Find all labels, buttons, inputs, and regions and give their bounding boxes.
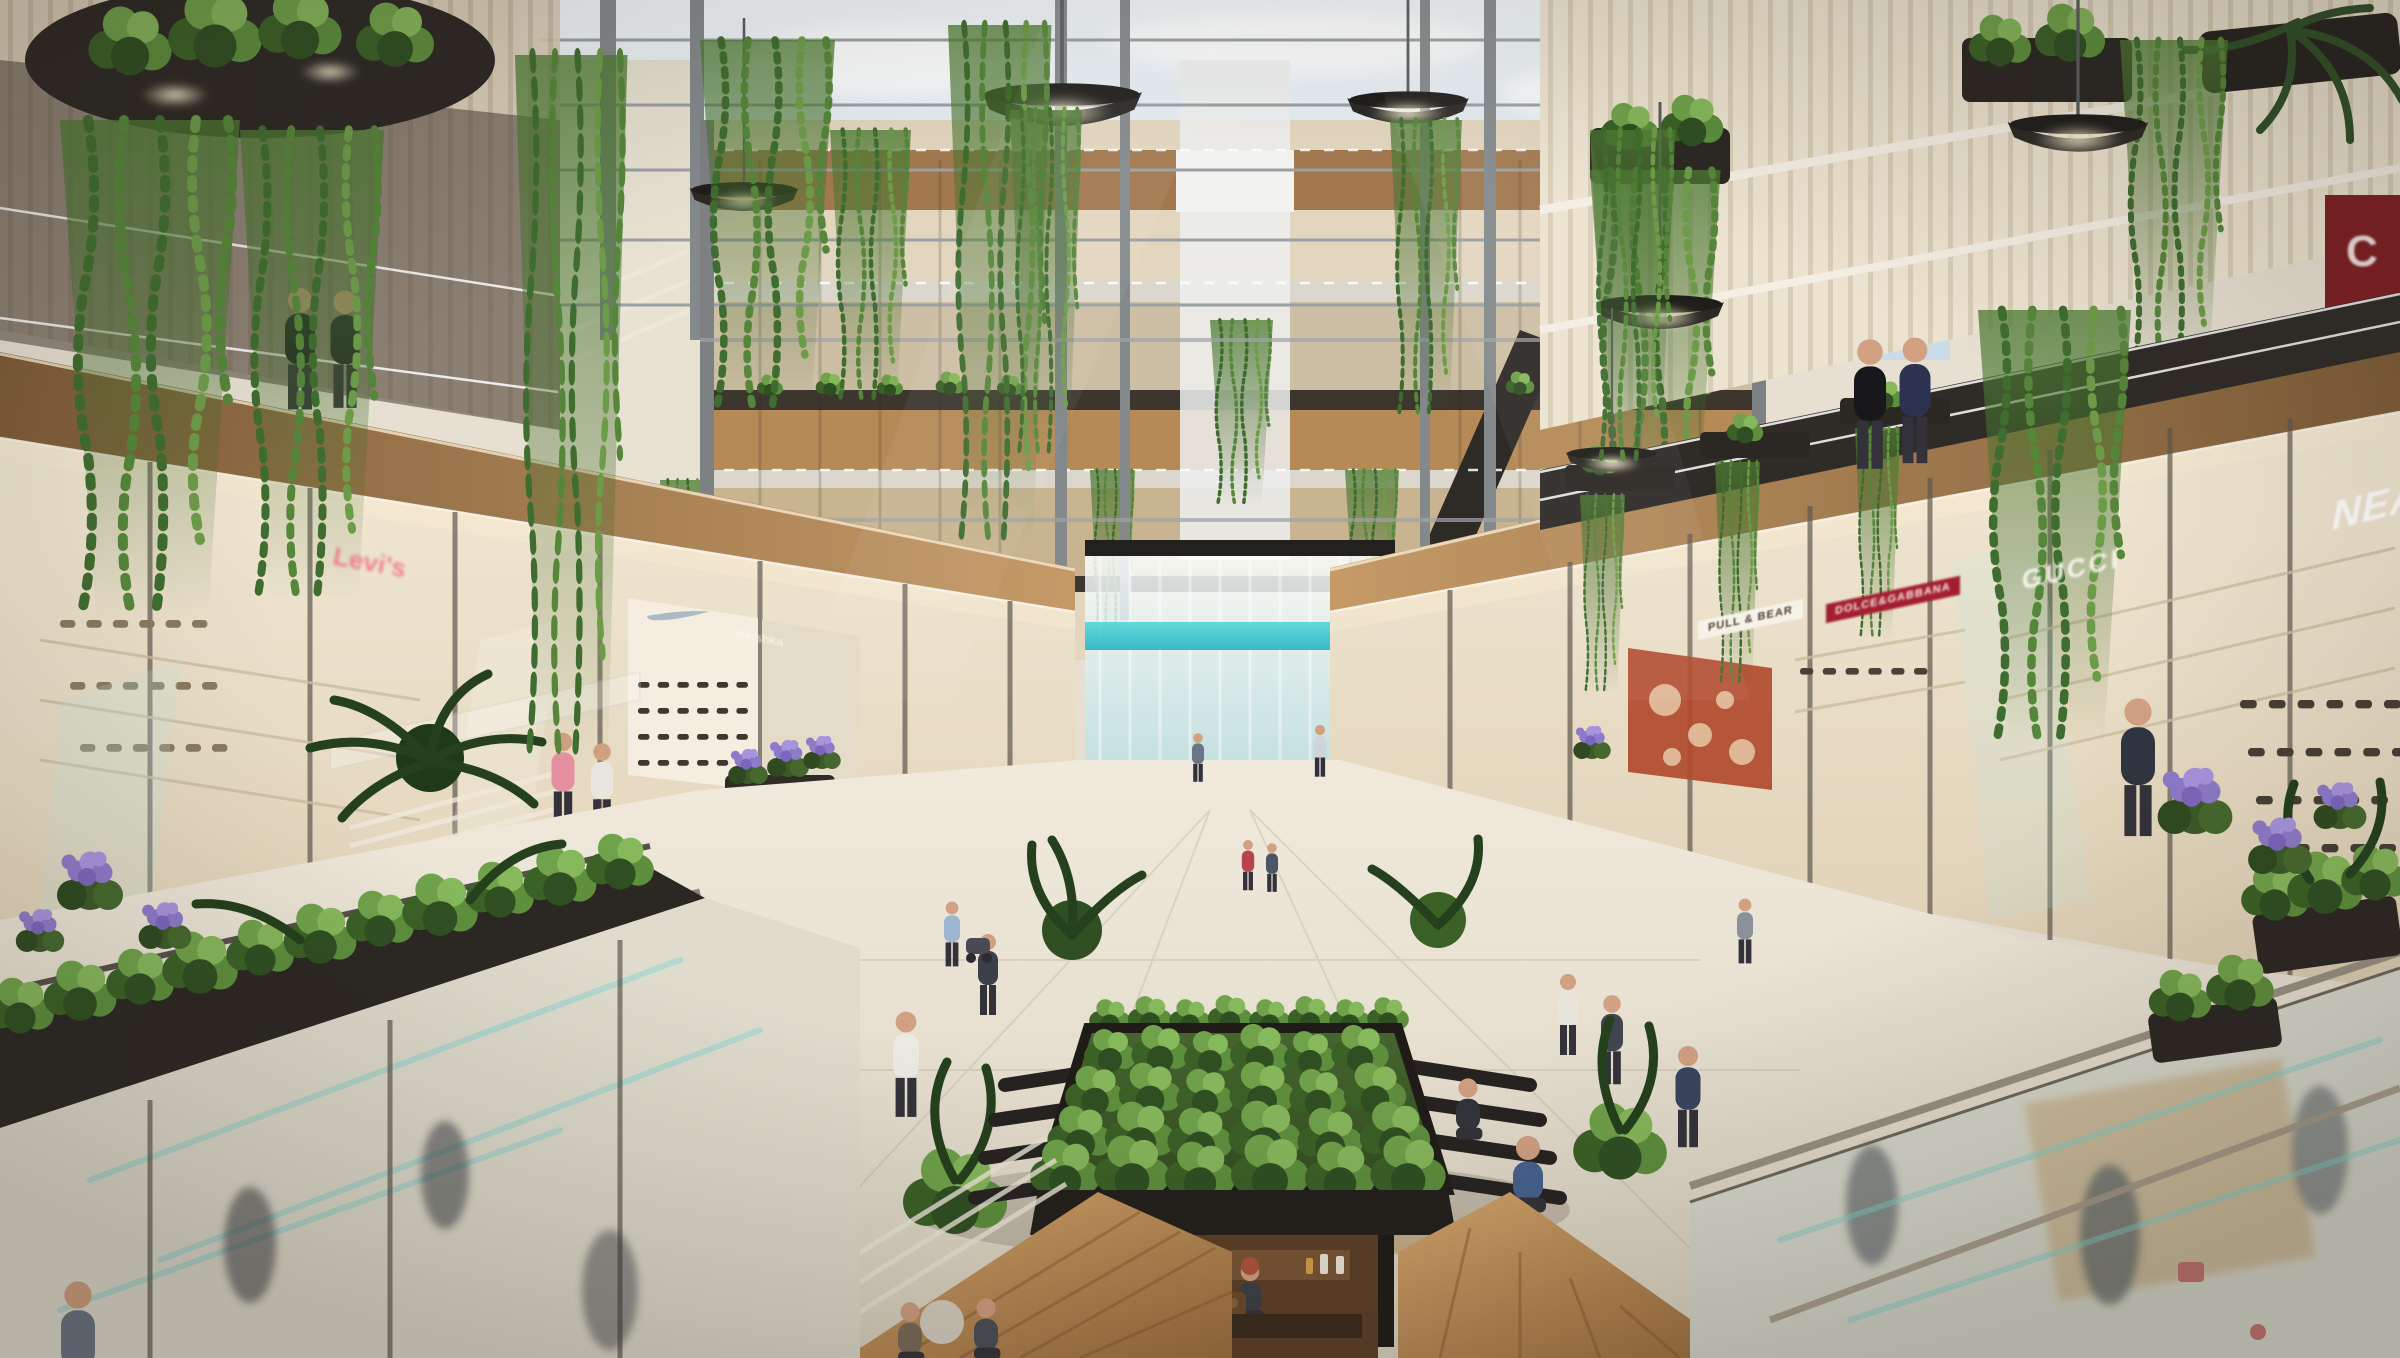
mall-atrium-scene: Levi's Bershka PULL & BEAR DOLCE&GABBANA… [0,0,2400,1358]
cafe-table [920,1300,964,1344]
partial-storefront-sign-top-right: C [2346,230,2378,274]
person-foreground-left [61,1281,95,1358]
atrium-render-canvas [0,0,2400,1358]
